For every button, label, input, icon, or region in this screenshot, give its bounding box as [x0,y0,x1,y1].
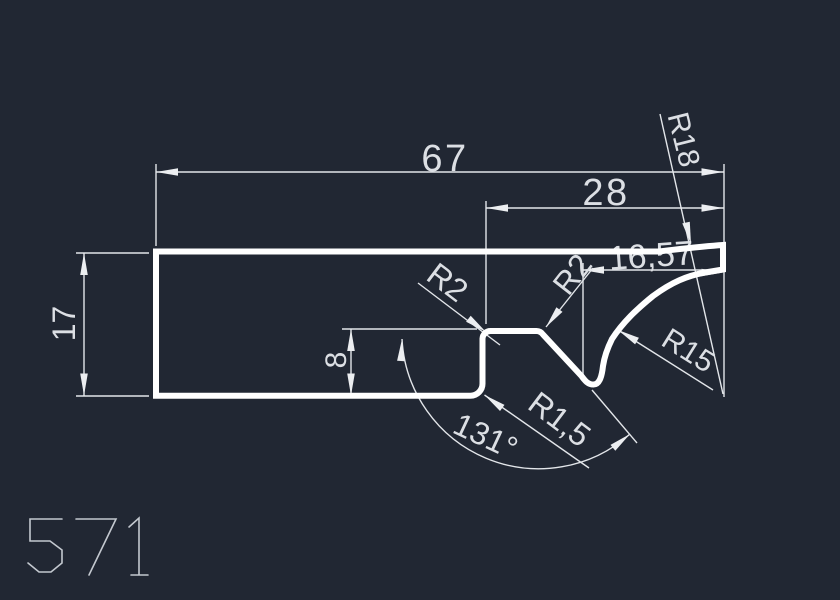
svg-text:8: 8 [320,352,353,369]
svg-text:28: 28 [582,172,629,214]
svg-text:17: 17 [46,306,82,342]
svg-text:67: 67 [421,138,468,180]
svg-text:16,57: 16,57 [607,234,695,278]
